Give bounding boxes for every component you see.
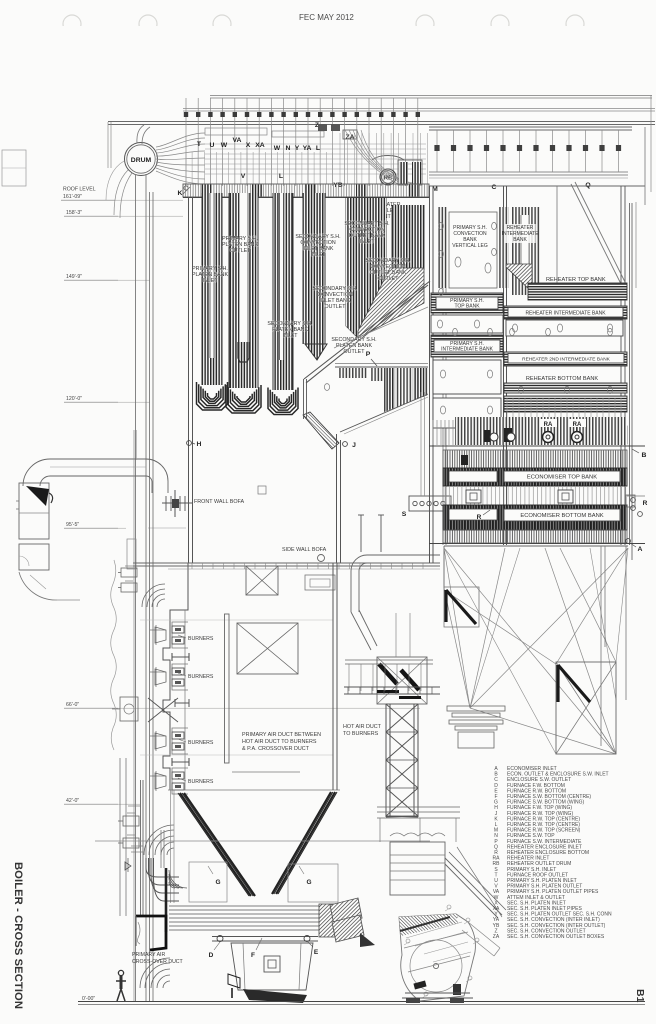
svg-text:ROOF LEVEL: ROOF LEVEL [63, 187, 96, 193]
svg-text:REHEATER 2ND INTERMEDIATE BANK: REHEATER 2ND INTERMEDIATE BANK [522, 356, 611, 362]
svg-text:SIDE WALL BOFA: SIDE WALL BOFA [282, 547, 327, 553]
svg-text:42'-0": 42'-0" [66, 798, 79, 804]
svg-text:OUTLET: OUTLET [230, 248, 252, 254]
svg-text:INLET: INLET [359, 239, 375, 245]
svg-text:ECONOMISER BOTTOM BANK: ECONOMISER BOTTOM BANK [520, 513, 603, 519]
svg-text:Y: Y [295, 145, 300, 152]
svg-text:BURNERS: BURNERS [188, 740, 214, 746]
svg-text:G: G [306, 879, 311, 886]
svg-text:J: J [352, 442, 356, 449]
svg-text:95'-5": 95'-5" [66, 522, 79, 528]
svg-text:Q: Q [585, 182, 590, 189]
svg-text:BANK: BANK [513, 237, 527, 243]
svg-text:INLET: INLET [310, 252, 326, 258]
svg-text:DRUM: DRUM [131, 157, 152, 164]
svg-text:VA: VA [233, 137, 242, 144]
svg-text:ZA: ZA [493, 934, 500, 940]
svg-text:S: S [402, 511, 407, 518]
svg-text:U: U [210, 142, 215, 149]
svg-text:ECONOMISER TOP BANK: ECONOMISER TOP BANK [527, 475, 597, 481]
svg-text:R: R [643, 500, 648, 507]
svg-text:INLET: INLET [282, 333, 298, 339]
svg-text:66'-0": 66'-0" [66, 702, 79, 708]
svg-text:B: B [642, 452, 647, 459]
svg-text:120'-0": 120'-0" [66, 396, 82, 402]
svg-text:TOP BANK: TOP BANK [454, 304, 480, 310]
svg-text:B1: B1 [634, 989, 646, 1003]
svg-text:L: L [279, 173, 283, 180]
svg-text:161'-09": 161'-09" [63, 194, 82, 200]
svg-text:REHEATER INTERMEDIATE BANK: REHEATER INTERMEDIATE BANK [525, 310, 606, 316]
svg-text:FEC MAY 2012: FEC MAY 2012 [299, 13, 354, 22]
svg-text:H: H [197, 441, 202, 448]
svg-text:K: K [178, 190, 183, 197]
svg-text:G: G [215, 879, 220, 886]
svg-text:BURNERS: BURNERS [188, 779, 214, 785]
svg-text:VERTICAL LEG: VERTICAL LEG [452, 243, 488, 249]
svg-text:PRIMARY AIR: PRIMARY AIR [132, 952, 166, 958]
svg-text:YA: YA [303, 145, 312, 152]
svg-text:OUTLET: OUTLET [325, 304, 347, 310]
svg-text:W: W [274, 145, 281, 152]
svg-text:F: F [251, 952, 255, 959]
svg-text:N: N [286, 145, 291, 152]
svg-text:OUTLET: OUTLET [344, 349, 366, 355]
svg-text:SEC. S.H. CONVECTION OUTLET BO: SEC. S.H. CONVECTION OUTLET BOXES [507, 934, 605, 940]
svg-text:ZA: ZA [345, 134, 354, 141]
svg-text:BOILER - CROSS SECTION: BOILER - CROSS SECTION [12, 862, 24, 1009]
svg-text:A: A [638, 546, 643, 553]
svg-text:PRIMARY AIR DUCT BETWEEN: PRIMARY AIR DUCT BETWEEN [242, 732, 321, 738]
svg-text:& P.A. CROSSOVER DUCT: & P.A. CROSSOVER DUCT [242, 746, 310, 752]
svg-text:C: C [492, 184, 497, 191]
svg-text:OUTLET: OUTLET [378, 276, 400, 282]
svg-text:158'-3": 158'-3" [66, 210, 82, 216]
svg-text:HOT AIR DUCT TO BURNERS: HOT AIR DUCT TO BURNERS [242, 739, 317, 745]
svg-text:L: L [316, 145, 320, 152]
svg-text:BURNERS: BURNERS [188, 636, 214, 642]
svg-text:CROSS-OVER DUCT: CROSS-OVER DUCT [132, 959, 184, 965]
svg-text:INTERMEDIATE BANK: INTERMEDIATE BANK [441, 347, 494, 353]
svg-text:REHEATER BOTTOM BANK: REHEATER BOTTOM BANK [526, 376, 598, 382]
svg-text:V: V [241, 173, 246, 180]
svg-text:P: P [366, 351, 371, 358]
svg-text:E: E [314, 949, 319, 956]
svg-text:149'-9": 149'-9" [66, 274, 82, 280]
svg-text:INLET: INLET [202, 278, 218, 284]
svg-text:FRONT WALL BOFA: FRONT WALL BOFA [194, 499, 245, 505]
svg-text:X: X [246, 142, 251, 149]
svg-text:R: R [477, 514, 482, 521]
svg-text:W: W [221, 142, 228, 149]
svg-text:TO BURNERS: TO BURNERS [343, 731, 379, 737]
svg-text:REHEATER TOP BANK: REHEATER TOP BANK [546, 277, 606, 283]
svg-text:D: D [209, 952, 214, 959]
svg-text:XA: XA [255, 142, 265, 149]
svg-text:HOT AIR DUCT: HOT AIR DUCT [343, 724, 382, 730]
svg-text:BURNERS: BURNERS [188, 674, 214, 680]
